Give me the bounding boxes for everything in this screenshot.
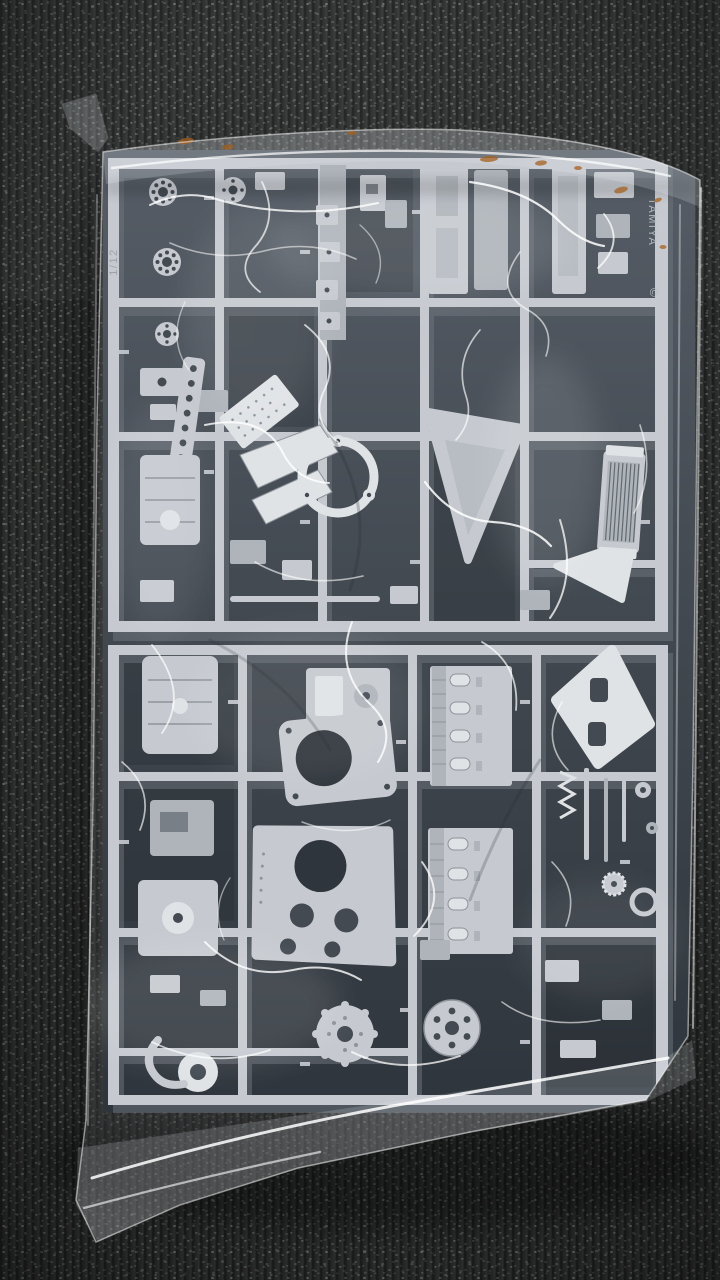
pulley-part xyxy=(424,1000,480,1056)
molded-scale-text: 1/12 xyxy=(108,248,120,275)
molded-copyright-text: © xyxy=(647,288,661,298)
top-band-inner-shadow xyxy=(105,180,695,194)
cylinder-head-part xyxy=(428,828,513,954)
cylinder-head-part xyxy=(430,666,512,786)
plastic-bag: 1/12 TAMIYA © xyxy=(62,94,702,1242)
sprue-contents: 1/12 TAMIYA © xyxy=(80,150,695,1113)
hub-part xyxy=(153,248,181,276)
molded-brand-text: TAMIYA xyxy=(646,198,658,246)
photo-canvas: 1/12 TAMIYA © xyxy=(0,0,720,1280)
bearing-part xyxy=(155,322,179,346)
